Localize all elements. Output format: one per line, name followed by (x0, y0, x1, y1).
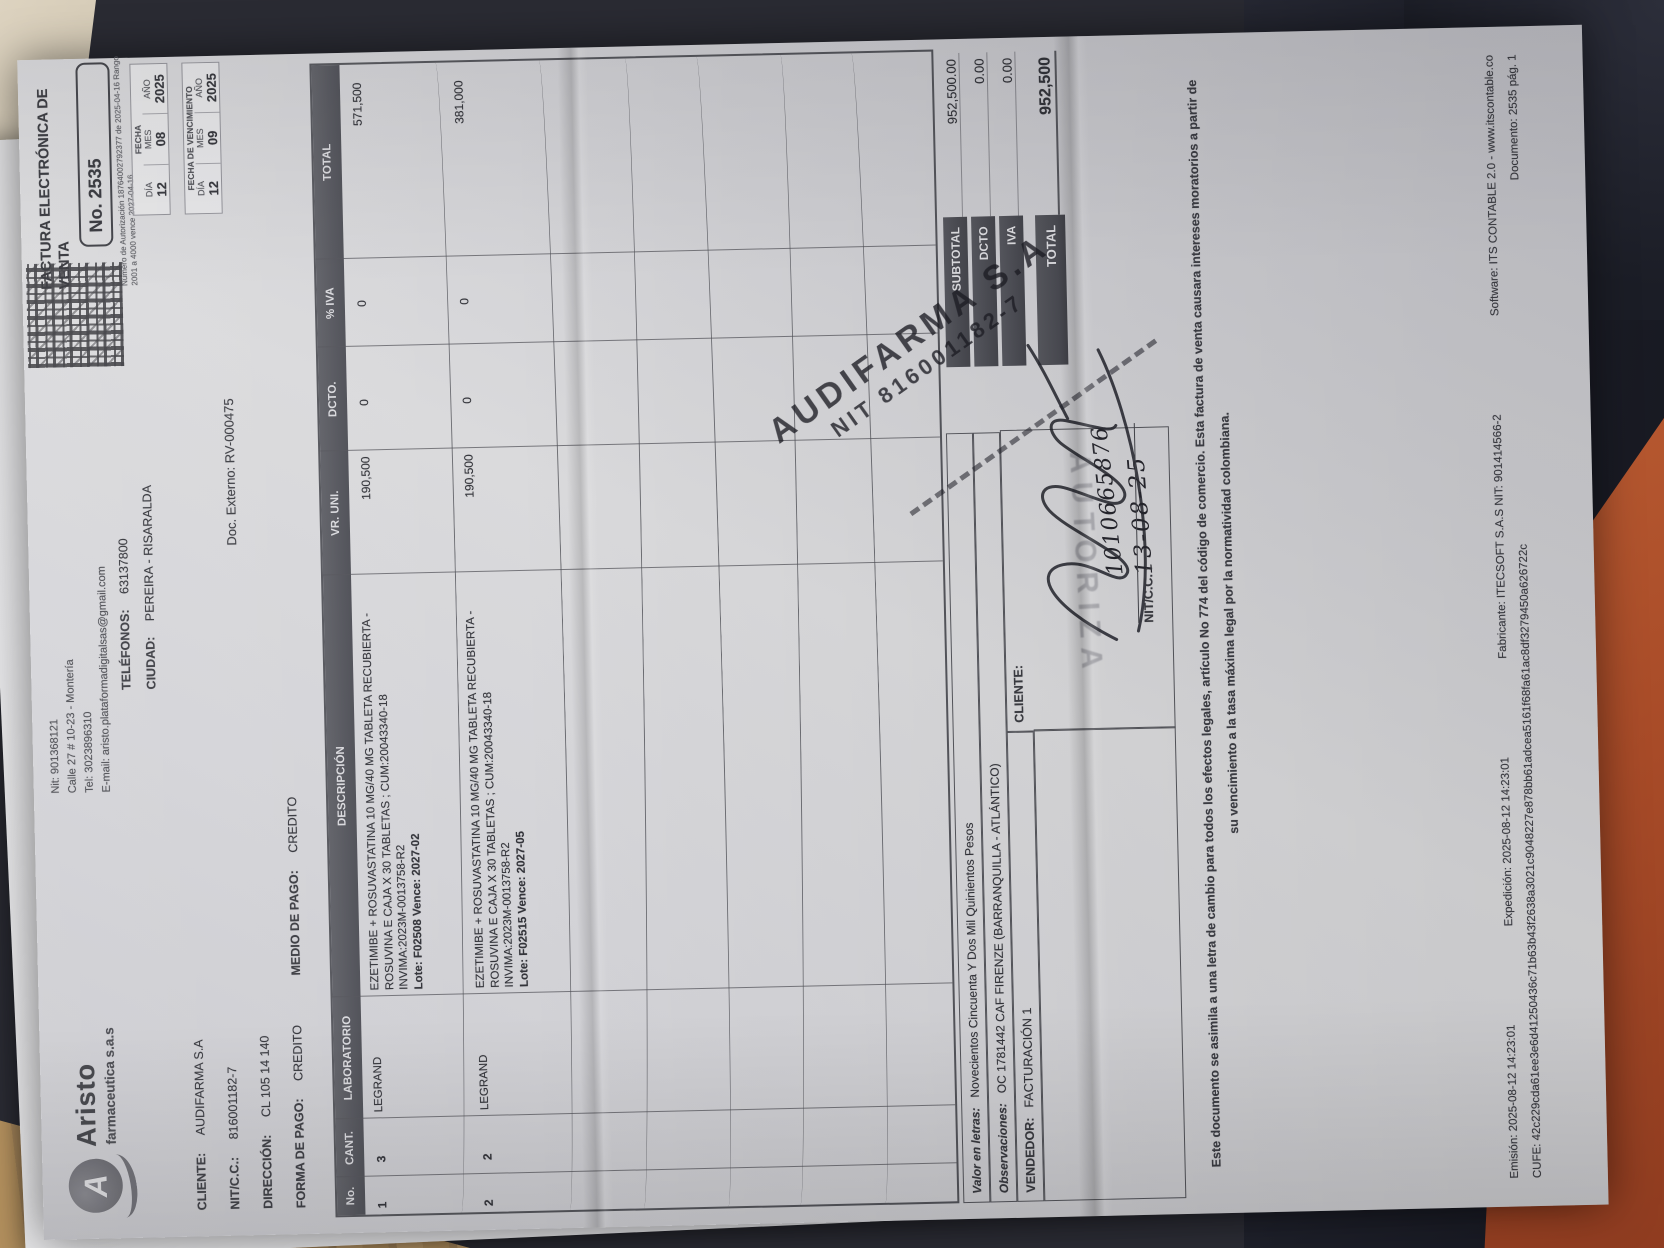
amount-in-words-label: Valor en letras: (968, 1107, 984, 1194)
legal-disclaimer: Este documento se asimila a una letra de… (1180, 73, 1255, 1174)
client-nit-value: 816001182-7 (225, 1066, 241, 1139)
item1-total: 571,500 (350, 82, 367, 232)
invoice-paper: A Aristo farmaceutica s.a.s Nit: 9013681… (17, 25, 1608, 1240)
observations-label: Observaciones: (995, 1103, 1011, 1193)
city-label: CIUDAD: (143, 636, 158, 689)
empty-row-line (758, 55, 809, 1205)
item1-unit-price: 190,500 (358, 456, 374, 566)
payment-row: FORMA DE PAGO: CREDITO MEDIO DE PAGO: CR… (285, 797, 308, 1209)
subtotal-value: 952,500.00 (943, 53, 963, 217)
payment-form-label: FORMA DE PAGO: (292, 1098, 308, 1208)
photo-scene: A Aristo farmaceutica s.a.s Nit: 9013681… (0, 0, 1664, 1248)
cufe-code: CUFE: 42c229cda61ee3e6d41250436c71b63b43… (1518, 544, 1544, 1178)
supplier-subname: farmaceutica s.a.s (101, 1027, 119, 1144)
vendor-label: VENDEDOR: (1022, 1117, 1038, 1192)
client-row: CLIENTE: AUDIFARMA S.A (191, 1039, 209, 1210)
col-laboratorio: LABORATORIO (333, 997, 364, 1120)
city-row: CIUDAD: PEREIRA - RISARALDA (140, 485, 159, 690)
empty-row-line (829, 53, 894, 1203)
item2-description: EZETIMIBE + ROSUVASTATINA 10 MG/40 MG TA… (463, 567, 532, 988)
item2-iva: 0 (456, 266, 472, 336)
issue-date-table: FECHA DÍA12 MES08 AÑO2025 (129, 63, 170, 216)
client-name: AUDIFARMA S.A (191, 1039, 207, 1135)
client-signature-label: CLIENTE: (1011, 665, 1026, 723)
supplier-contact-block: Nit: 901368121 Calle 27 # 10-23 - Monter… (43, 566, 116, 794)
issue-month: 08 (152, 114, 168, 164)
total-value: 952,500 (1036, 51, 1060, 215)
client-address-label: DIRECCIÓN: (260, 1134, 276, 1209)
city-value: PEREIRA - RISARALDA (140, 485, 157, 621)
empty-row-line (674, 57, 737, 1207)
item1-cant: 3 (374, 1155, 388, 1162)
client-label: CLIENTE: (194, 1153, 209, 1211)
expedition-timestamp: Expedición: 2025-08-12 14:23:01 (1499, 757, 1515, 927)
item2-laboratorio: LEGRAND (478, 1054, 491, 1110)
item1-laboratorio: LEGRAND (372, 1057, 385, 1113)
col-cant: CANT. (335, 1119, 364, 1178)
col-iva: % IVA (316, 259, 346, 348)
client-nit-label: NIT/C.C.: (227, 1157, 242, 1210)
invoice-number-box: No. 2535 (75, 62, 113, 247)
phones-row: TELÉFONOS: 63137800 (116, 538, 133, 690)
vendor-signature-area: NIT/C.C. : (1034, 726, 1187, 1201)
document-type-title: FACTURA ELECTRÓNICA DE VENTA (33, 53, 74, 290)
item1-iva: 0 (354, 268, 370, 338)
document-page-info: Documento: 2535 pág. 1 (1506, 54, 1521, 180)
discount-value: 0.00 (971, 52, 991, 216)
col-vruni: VR. UNI. (320, 451, 351, 576)
items-table: No. CANT. LABORATORIO DESCRIPCIÓN VR. UN… (309, 50, 959, 1218)
client-address-value: CL 105 14 140 (257, 1035, 273, 1117)
col-no: No. (337, 1177, 366, 1216)
row-separator (517, 60, 579, 1210)
empty-row-line (603, 58, 653, 1208)
iva-value: 0.00 (999, 52, 1019, 216)
external-doc-ref: Doc. Externo: RV-000475 (221, 398, 239, 545)
emission-timestamp: Emisión: 2025-08-12 14:23:01 (1505, 1024, 1520, 1178)
due-date-table: FECHA DE VENCIMIENTO DÍA12 MES09 AÑO2025 (181, 62, 222, 215)
due-day: 12 (206, 163, 222, 213)
manufacturer-info: Fabricante: ITECSOFT S.A.S NIT: 90141456… (1492, 414, 1510, 659)
phones-value: 63137800 (116, 538, 131, 594)
issue-day: 12 (154, 165, 170, 215)
item2-no: 2 (482, 1199, 496, 1206)
payment-method-label: MEDIO DE PAGO: (287, 870, 303, 976)
vendor-value: FACTURACIÓN 1 (1019, 1007, 1035, 1107)
item1-no: 1 (375, 1201, 389, 1208)
phones-label: TELÉFONOS: (118, 609, 134, 690)
supplier-name: Aristo (70, 1063, 103, 1148)
item2-unit-price: 190,500 (461, 454, 478, 564)
due-year: 2025 (203, 63, 219, 113)
payment-form-value: CREDITO (290, 1025, 305, 1081)
amount-in-words-value: Novecientos Cincuenta Y Dos Mil Quinient… (961, 822, 981, 1097)
payment-method-value: CREDITO (285, 797, 300, 853)
observations-value: OC 1781442 CAF FIRENZE (BARRANQUILLA - A… (987, 763, 1008, 1093)
item1-description: EZETIMIBE + ROSUVASTATINA 10 MG/40 MG TA… (359, 569, 427, 990)
software-info: Software: ITS CONTABLE 2.0 - www.itscont… (1483, 55, 1501, 316)
col-total: TOTAL (311, 65, 343, 260)
col-descripcion: DESCRIPCIÓN (323, 575, 361, 998)
col-dcto: DCTO. (318, 347, 348, 452)
item2-discount: 0 (459, 360, 475, 440)
item2-total: 381,000 (451, 80, 469, 230)
item1-discount: 0 (356, 362, 372, 442)
item2-cant: 2 (480, 1153, 494, 1160)
due-month: 09 (204, 113, 220, 163)
issue-year: 2025 (151, 64, 167, 114)
client-nit-row: NIT/C.C.: 816001182-7 (225, 1066, 242, 1209)
client-address-row: DIRECCIÓN: CL 105 14 140 (257, 1035, 275, 1209)
